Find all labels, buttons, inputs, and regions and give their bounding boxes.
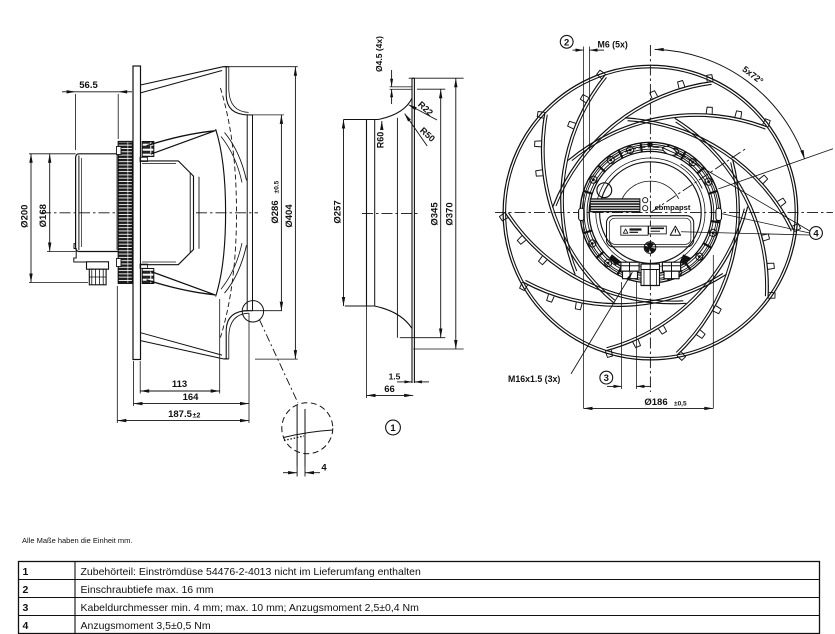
- svg-text:Alle Maße haben die Einheit mm: Alle Maße haben die Einheit mm.: [22, 536, 132, 545]
- svg-text:66: 66: [384, 384, 395, 395]
- svg-text:56.5: 56.5: [79, 80, 98, 91]
- svg-text:3: 3: [604, 373, 609, 384]
- svg-text:2: 2: [23, 584, 29, 596]
- svg-text:3: 3: [23, 602, 29, 614]
- svg-text:M6 (5x): M6 (5x): [598, 40, 628, 50]
- svg-text:4: 4: [321, 463, 327, 474]
- svg-text:Ø404: Ø404: [284, 204, 295, 228]
- svg-text:4: 4: [23, 620, 29, 632]
- svg-text:187.5: 187.5: [168, 409, 192, 420]
- svg-text:Ø186: Ø186: [644, 397, 667, 408]
- svg-text:164: 164: [183, 392, 200, 403]
- svg-text:±0,5: ±0,5: [674, 401, 687, 408]
- svg-text:Einschraubtiefe max. 16 mm: Einschraubtiefe max. 16 mm: [81, 584, 214, 596]
- svg-text:R60: R60: [375, 132, 385, 149]
- svg-text:Anzugsmoment 3,5±0,5 Nm: Anzugsmoment 3,5±0,5 Nm: [81, 620, 211, 632]
- svg-text:Zubehörteil: Einströmdüse 5447: Zubehörteil: Einströmdüse 54476-2-4013 n…: [81, 566, 421, 578]
- svg-text:±0.5: ±0.5: [274, 180, 281, 193]
- svg-text:Ø370: Ø370: [445, 202, 456, 225]
- svg-text:Ø200: Ø200: [20, 205, 31, 228]
- svg-text:Ø257: Ø257: [332, 200, 343, 223]
- svg-text:1: 1: [390, 423, 396, 434]
- svg-text:1: 1: [23, 566, 29, 578]
- svg-text:Ø168: Ø168: [38, 204, 49, 227]
- svg-text:4: 4: [813, 229, 819, 240]
- svg-text:ebmpapst: ebmpapst: [655, 203, 691, 212]
- svg-text:1.5: 1.5: [389, 372, 401, 382]
- svg-text:Ø286: Ø286: [270, 200, 281, 223]
- svg-text:Kabeldurchmesser min. 4 mm; ma: Kabeldurchmesser min. 4 mm; max. 10 mm; …: [81, 602, 420, 614]
- svg-text:Ø4.5 (4x): Ø4.5 (4x): [374, 36, 384, 72]
- svg-text:M16x1.5 (3x): M16x1.5 (3x): [508, 374, 560, 384]
- svg-text:2: 2: [564, 37, 569, 48]
- svg-text:113: 113: [172, 379, 187, 390]
- svg-text:±2: ±2: [193, 413, 201, 420]
- svg-text:Ø345: Ø345: [429, 202, 440, 226]
